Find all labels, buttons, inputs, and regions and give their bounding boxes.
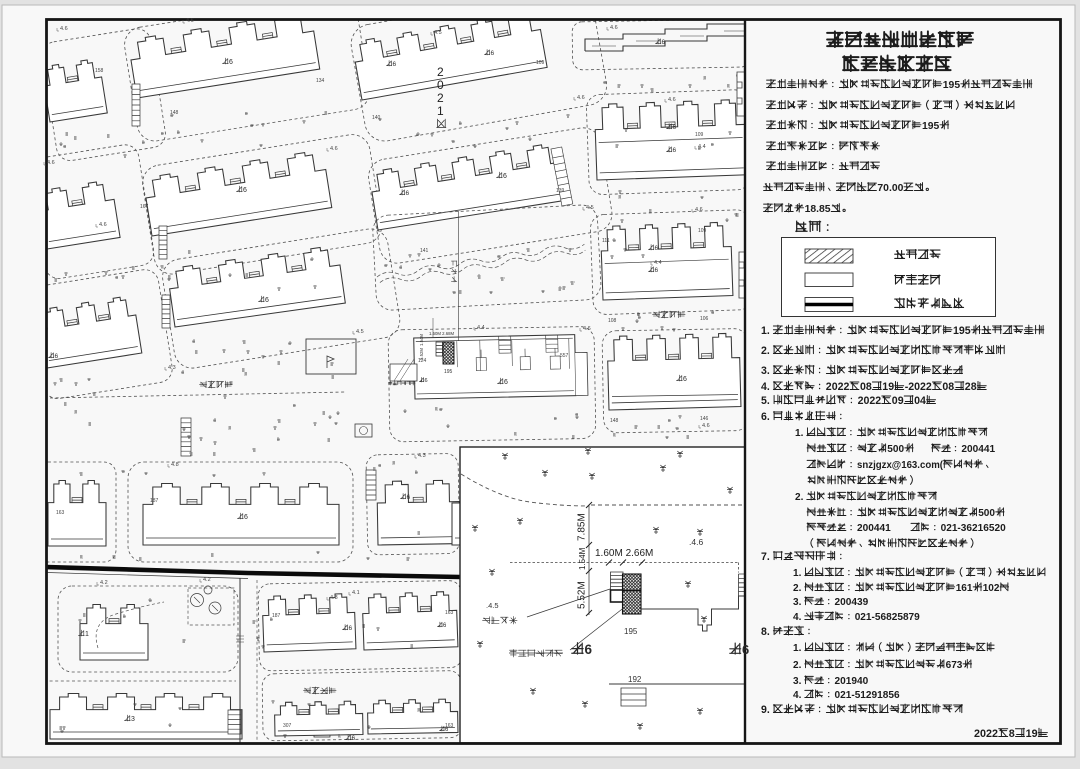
svg-text:4.2: 4.2 — [100, 580, 108, 586]
svg-text:4.6: 4.6 — [99, 222, 107, 228]
svg-text:4.5: 4.5 — [586, 205, 594, 211]
svg-text:8.: 8. — [761, 626, 770, 638]
svg-text:021-36216520: 021-36216520 — [941, 523, 1006, 534]
svg-text:200441: 200441 — [961, 444, 995, 455]
svg-text:161: 161 — [956, 583, 973, 594]
svg-text:2022: 2022 — [858, 395, 882, 407]
svg-text:192: 192 — [628, 675, 642, 684]
svg-text:1.54M: 1.54M — [419, 334, 424, 346]
svg-text:6: 6 — [491, 50, 495, 57]
svg-text:6: 6 — [425, 378, 428, 384]
svg-text:4.6: 4.6 — [583, 326, 591, 332]
svg-text:.4.6: .4.6 — [689, 537, 703, 547]
svg-text:109: 109 — [695, 132, 704, 138]
svg-text:140: 140 — [372, 115, 381, 121]
svg-text:1.: 1. — [761, 325, 770, 337]
svg-text:1.54M: 1.54M — [578, 547, 587, 570]
svg-text:4.5: 4.5 — [356, 329, 364, 335]
svg-text:4.: 4. — [761, 381, 770, 393]
svg-text:200441: 200441 — [857, 523, 891, 534]
svg-text:148: 148 — [170, 110, 179, 116]
svg-text:3.: 3. — [793, 676, 802, 687]
svg-text:4.4: 4.4 — [477, 325, 485, 331]
svg-text:134: 134 — [316, 78, 325, 84]
svg-text:500: 500 — [978, 508, 995, 519]
svg-text:3.: 3. — [761, 365, 770, 377]
svg-text:2022: 2022 — [826, 381, 850, 393]
svg-text:snzjgzx@163.com(: snzjgzx@163.com( — [857, 460, 944, 471]
svg-text:09: 09 — [892, 395, 904, 407]
svg-text:106: 106 — [700, 316, 709, 322]
svg-text:4.: 4. — [793, 612, 802, 623]
svg-text:4.6: 4.6 — [330, 146, 338, 152]
svg-text:19: 19 — [1026, 728, 1038, 740]
svg-text:1.: 1. — [793, 568, 802, 579]
svg-text:4.3: 4.3 — [418, 453, 426, 459]
svg-text:6: 6 — [662, 39, 666, 46]
svg-text:2.: 2. — [795, 492, 804, 503]
svg-text:6: 6 — [673, 147, 677, 154]
svg-text:195: 195 — [922, 121, 940, 132]
svg-text:1: 1 — [437, 104, 444, 118]
svg-text:4.1: 4.1 — [352, 590, 360, 596]
svg-text:021-56825879: 021-56825879 — [855, 612, 920, 623]
svg-text:6: 6 — [503, 173, 507, 180]
svg-text:4.6: 4.6 — [695, 207, 703, 213]
svg-text:201940: 201940 — [835, 676, 869, 687]
svg-text:108: 108 — [608, 318, 617, 324]
svg-text:6: 6 — [393, 61, 397, 68]
svg-text:307: 307 — [283, 723, 292, 729]
svg-text:158: 158 — [95, 68, 104, 74]
svg-text:6: 6 — [349, 625, 353, 632]
svg-text:6.: 6. — [761, 411, 770, 423]
svg-text:4.6: 4.6 — [668, 97, 676, 103]
svg-text:-2022: -2022 — [905, 381, 932, 393]
svg-text:1.50M 2.68M: 1.50M 2.68M — [429, 331, 454, 336]
svg-text:2: 2 — [437, 91, 444, 105]
svg-text:141: 141 — [420, 248, 429, 254]
svg-text:139: 139 — [556, 188, 565, 194]
svg-text:146: 146 — [700, 416, 709, 422]
svg-text:163: 163 — [56, 510, 65, 516]
svg-text:6: 6 — [55, 353, 59, 360]
svg-text:9.: 9. — [761, 704, 770, 716]
svg-text:1.60M 2.66M: 1.60M 2.66M — [595, 548, 653, 559]
svg-text:4.6: 4.6 — [702, 423, 710, 429]
svg-text:200439: 200439 — [835, 597, 869, 608]
svg-text:6: 6 — [352, 735, 356, 742]
svg-text:102: 102 — [983, 583, 1000, 594]
svg-text:6: 6 — [229, 59, 233, 66]
svg-text:6: 6 — [504, 379, 508, 386]
svg-text:6: 6 — [244, 514, 248, 521]
svg-text:2.: 2. — [761, 345, 770, 357]
svg-text:500: 500 — [887, 444, 904, 455]
svg-text:7.: 7. — [761, 551, 770, 563]
svg-text:04: 04 — [914, 395, 926, 407]
svg-text:4.5: 4.5 — [434, 30, 442, 36]
svg-text:0: 0 — [437, 78, 444, 92]
svg-text:2.: 2. — [793, 583, 802, 594]
svg-text:167: 167 — [140, 204, 149, 210]
svg-text:4.6: 4.6 — [60, 26, 68, 32]
svg-text:4.3: 4.3 — [168, 365, 176, 371]
svg-text:1: 1 — [85, 631, 89, 638]
svg-text:111: 111 — [602, 238, 610, 244]
svg-text:2022: 2022 — [974, 728, 998, 740]
svg-text:4.3: 4.3 — [330, 595, 338, 601]
svg-text:6: 6 — [655, 245, 659, 252]
svg-text:4.8: 4.8 — [171, 462, 179, 468]
svg-text:6: 6 — [407, 494, 411, 501]
svg-text:6: 6 — [683, 376, 687, 383]
svg-text:70.00: 70.00 — [877, 183, 903, 194]
svg-text:195: 195 — [624, 627, 638, 636]
svg-text:08: 08 — [860, 381, 872, 393]
svg-text:2.: 2. — [793, 660, 802, 671]
svg-text:1.: 1. — [795, 428, 804, 439]
svg-text:08: 08 — [942, 381, 954, 393]
svg-text:4.2: 4.2 — [203, 577, 211, 583]
svg-text:187: 187 — [150, 498, 159, 504]
svg-text:109: 109 — [536, 60, 545, 66]
svg-text:021-51291856: 021-51291856 — [835, 690, 900, 701]
svg-text:5.52M: 5.52M — [577, 581, 588, 609]
svg-text:4.6: 4.6 — [186, 18, 194, 24]
svg-text:4.6: 4.6 — [577, 95, 585, 101]
svg-text:5.: 5. — [761, 395, 770, 407]
svg-text:8: 8 — [1009, 728, 1015, 740]
svg-text:163: 163 — [445, 610, 454, 616]
svg-text:557: 557 — [560, 353, 569, 359]
svg-text:19: 19 — [882, 381, 894, 393]
svg-text:195: 195 — [953, 325, 971, 337]
svg-text:6: 6 — [655, 267, 659, 274]
svg-text:124: 124 — [418, 358, 427, 364]
svg-text:3: 3 — [131, 716, 135, 723]
svg-text:1.: 1. — [793, 643, 802, 654]
svg-text:4.: 4. — [793, 690, 802, 701]
svg-text:4.6: 4.6 — [47, 160, 55, 166]
svg-text:2: 2 — [437, 65, 444, 79]
svg-text:4.4: 4.4 — [654, 260, 662, 266]
svg-text:.4.5: .4.5 — [486, 601, 499, 610]
svg-text:187: 187 — [272, 613, 281, 619]
svg-text:4.6: 4.6 — [610, 25, 618, 31]
svg-text:7.85M: 7.85M — [577, 513, 588, 541]
svg-text:6: 6 — [585, 642, 593, 657]
svg-text:195: 195 — [943, 80, 961, 91]
svg-text:673: 673 — [946, 660, 963, 671]
svg-text:6: 6 — [243, 187, 247, 194]
svg-text:3.: 3. — [793, 597, 802, 608]
svg-text:6: 6 — [673, 124, 677, 131]
svg-text:163: 163 — [445, 723, 454, 729]
svg-text:109: 109 — [698, 228, 707, 234]
svg-text:148: 148 — [610, 418, 619, 424]
svg-text:6: 6 — [265, 297, 269, 304]
svg-text:18.85: 18.85 — [805, 204, 831, 215]
svg-text:6: 6 — [406, 190, 410, 197]
svg-text:195: 195 — [444, 369, 453, 375]
svg-text:6: 6 — [742, 642, 749, 657]
svg-text:28: 28 — [965, 381, 977, 393]
svg-text:4.4: 4.4 — [698, 144, 706, 150]
